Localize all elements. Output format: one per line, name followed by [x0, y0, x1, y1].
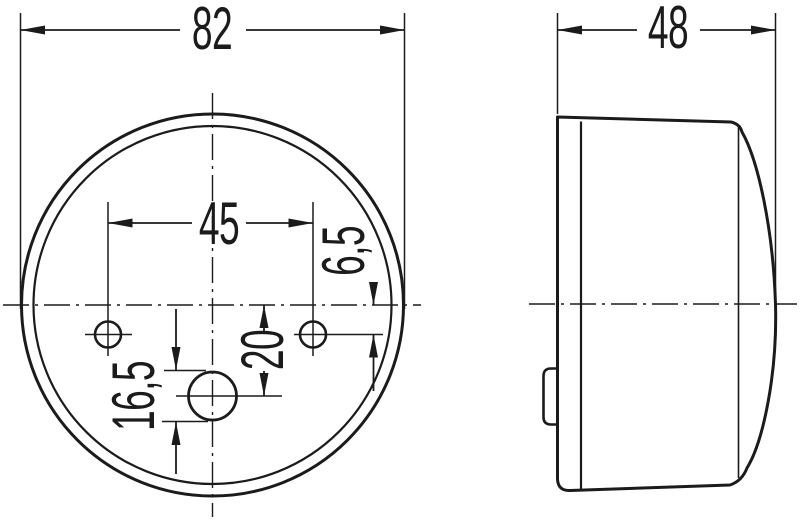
dim-65-arrow-down-icon [369, 282, 378, 305]
dim-65-arrow-up-icon [369, 335, 378, 358]
dim-165-arrow-up-icon [172, 422, 181, 445]
dim-165-label: 16,5 [104, 361, 164, 431]
dim-20-label: 20 [233, 330, 293, 370]
dim-82-arrow-right-icon [380, 26, 405, 35]
dim-48-arrow-left-icon [558, 26, 583, 35]
dim-45-arrow-left-icon [108, 219, 133, 228]
dim-45-label: 45 [199, 194, 239, 254]
dim-65-label: 6,5 [314, 226, 374, 276]
dim-82-arrow-left-icon [21, 26, 46, 35]
dim-20-arrow-up-icon [260, 305, 269, 328]
dim-165-arrow-down-icon [172, 347, 181, 370]
line-group [3, 13, 797, 517]
dim-20-arrow-down-icon [260, 373, 269, 396]
dim-82-label: 82 [192, 0, 232, 59]
dim-48-label: 48 [648, 0, 688, 58]
dim-48-arrow-right-icon [751, 26, 776, 35]
drawing-linework [0, 0, 800, 522]
drawing-canvas: 82 48 45 6,5 20 16,5 [0, 0, 800, 522]
side-rear-tab [544, 369, 558, 425]
